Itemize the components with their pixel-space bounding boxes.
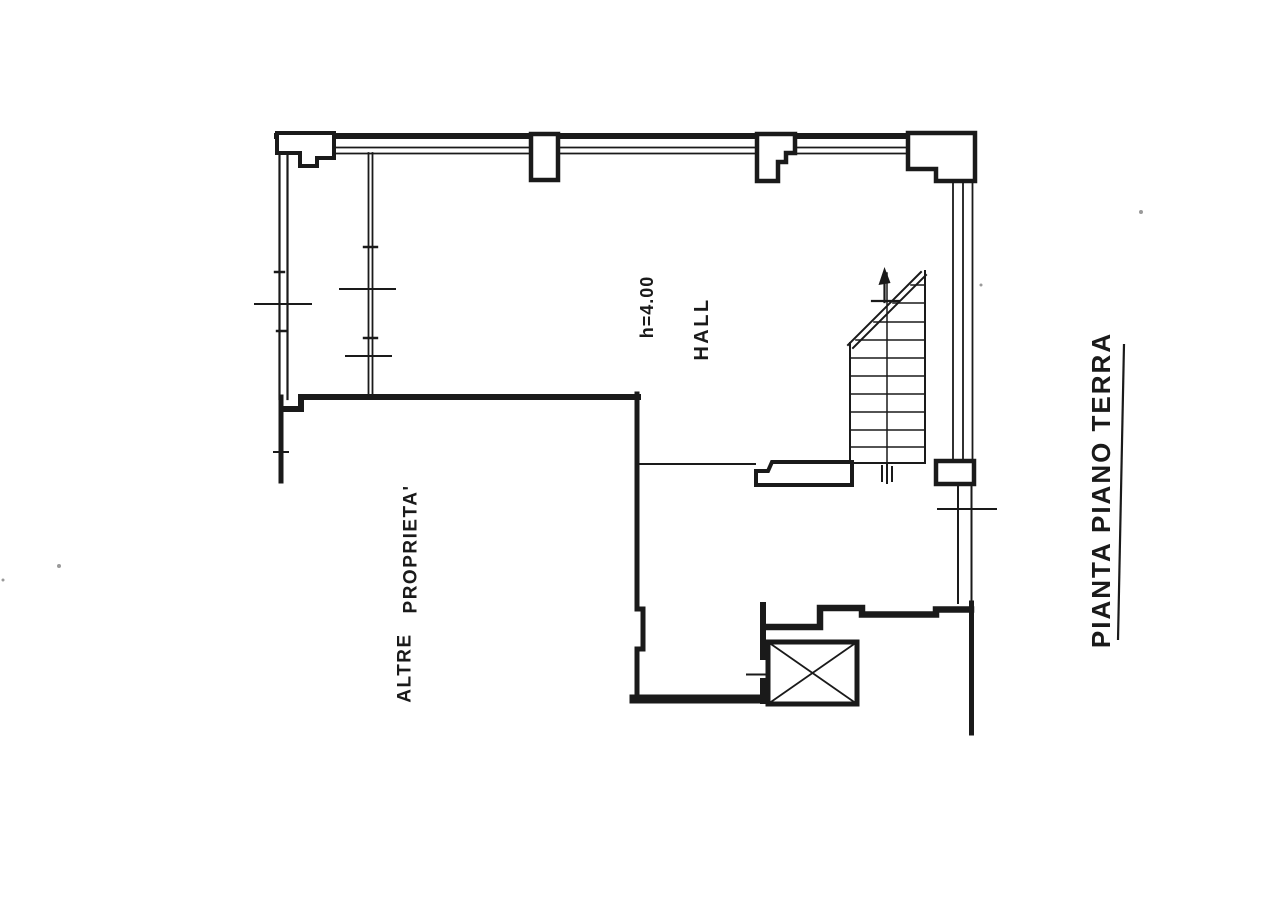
floor-plan-scan-page: h=4.00 HALL PROPRIETA' ALTRE PIANTA PIAN… [0,0,1280,920]
ceiling-height-label: h=4.00 [637,276,657,339]
hall-room-label: HALL [691,297,713,360]
lower-room-west-wall [637,394,643,696]
stair-direction-arrow-head [879,267,891,285]
staircase-plan-symbol [848,267,926,463]
interior-partition-joint-ticks [364,247,377,338]
elevator-x-symbol [768,642,857,704]
hall-south-wall [283,397,638,409]
drawing-title: PIANTA PIANO TERRA [1086,332,1116,648]
speck-dot [2,579,5,582]
pillar-top-right-corner [908,133,975,181]
speck-dot [980,284,983,287]
other-property-label-word1: ALTRE [395,633,416,702]
pillar-top-right-middle [757,134,795,181]
pillar-top-left [277,133,334,166]
pillar-top-middle [531,134,558,180]
other-property-label-word2: PROPRIETA' [401,485,422,614]
speck-dot [57,564,61,568]
interior-partition-cross-ticks [340,289,395,356]
elevator-lobby-wall [764,608,971,627]
speck-dot [1139,210,1143,214]
walls-group [255,133,996,733]
title-underline [1118,344,1124,640]
stair-treads-upper [856,285,925,340]
stair-landing-wall-piece [756,462,852,485]
pillar-stair-landing [936,461,974,484]
stair-landing-ticks [882,465,892,483]
floor-plan-drawing: h=4.00 HALL PROPRIETA' ALTRE PIANTA PIAN… [0,0,1280,920]
